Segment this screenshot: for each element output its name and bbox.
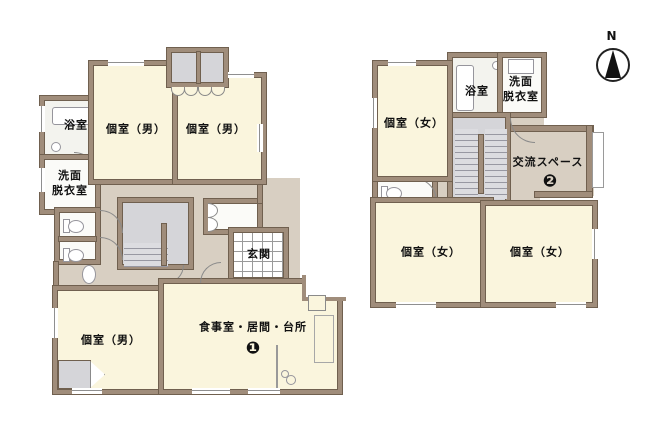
private-room-male-2-label: 個室（男） xyxy=(186,123,246,138)
window xyxy=(388,60,416,66)
washroom-1f-label: 洗面 脱衣室 xyxy=(52,169,88,199)
window xyxy=(556,302,586,308)
stair-wall xyxy=(162,224,166,265)
private-room-female-1-label: 個室（女） xyxy=(384,117,444,132)
north-label: N xyxy=(606,28,617,44)
kitchen-counter xyxy=(276,345,278,389)
closet xyxy=(167,48,228,87)
window xyxy=(228,72,254,78)
stair-rail xyxy=(479,135,483,193)
window-bay xyxy=(314,315,334,363)
window xyxy=(72,388,102,394)
dlk-label: 食事室・居間・台所 xyxy=(199,321,307,336)
toilet-icon xyxy=(68,249,84,262)
column xyxy=(308,295,326,311)
dlk-number: ❶ xyxy=(246,338,260,361)
window xyxy=(592,229,598,259)
washbasin xyxy=(508,59,534,74)
private-room-male-3-label: 個室（男） xyxy=(81,334,141,349)
entrance-label: 玄関 xyxy=(247,248,271,263)
private-room-female-3-label: 個室（女） xyxy=(510,246,570,261)
washroom-2f-label: 洗面 脱衣室 xyxy=(503,75,539,105)
floor-plan: 玄関 浴室 洗面 脱衣室 個室（男） 個室（男） 個室（男） xyxy=(0,0,650,430)
outside-patch xyxy=(544,100,602,126)
stair-steps xyxy=(485,129,507,199)
window xyxy=(257,124,263,152)
closet xyxy=(58,360,91,389)
drain-circle xyxy=(51,142,61,152)
stairs-2f xyxy=(448,113,510,205)
north-arrow-icon xyxy=(594,45,632,85)
private-room-female-2-label: 個室（女） xyxy=(401,246,461,261)
window xyxy=(39,168,45,192)
window xyxy=(52,308,58,338)
washbasin-oval xyxy=(82,265,96,284)
lounge-label: 交流スペース xyxy=(513,156,584,171)
stair-steps xyxy=(455,129,478,199)
sink-circle xyxy=(286,375,296,385)
window xyxy=(396,302,436,308)
window xyxy=(192,388,230,394)
bathroom-2f-label: 浴室 xyxy=(465,85,489,100)
stairs-1f xyxy=(118,198,193,269)
stall-divider-wall xyxy=(59,237,96,241)
bathroom-1f-label: 浴室 xyxy=(64,119,88,134)
closet-divider xyxy=(197,52,200,83)
toilet-icon xyxy=(68,220,84,233)
window xyxy=(108,60,144,66)
window xyxy=(39,106,45,132)
lounge-number: ❷ xyxy=(543,171,557,194)
toilet-stalls xyxy=(55,208,100,264)
balcony xyxy=(592,132,604,188)
window xyxy=(248,388,280,394)
private-room-male-1-label: 個室（男） xyxy=(106,123,166,138)
window xyxy=(371,98,377,128)
